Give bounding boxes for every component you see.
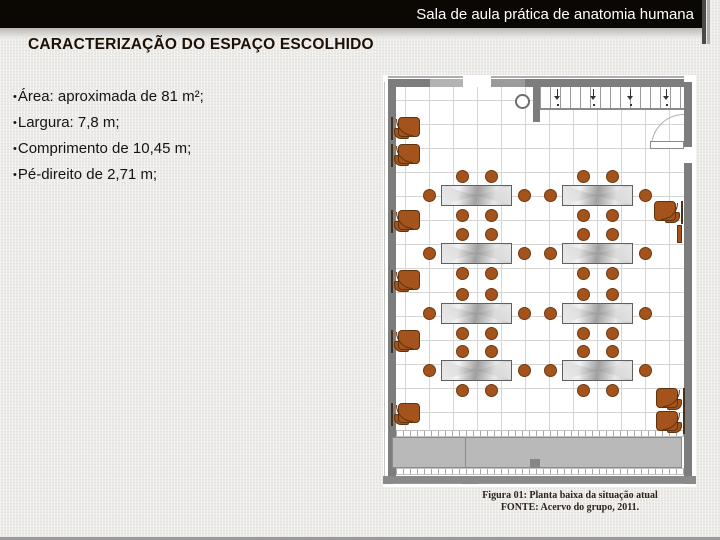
- stool: [423, 364, 436, 377]
- desk-chair: [393, 143, 421, 168]
- stool: [606, 228, 619, 241]
- lab-table: [562, 243, 633, 264]
- stool: [606, 327, 619, 340]
- slide-heading: CARACTERIZAÇÃO DO ESPAÇO ESCOLHIDO: [28, 36, 374, 54]
- stool: [577, 209, 590, 222]
- stool: [639, 189, 652, 202]
- door-leaf: [650, 141, 684, 149]
- figure-caption: Figura 01: Planta baixa da situação atua…: [425, 490, 715, 514]
- stool: [485, 384, 498, 397]
- desk-chair: [393, 116, 421, 141]
- stool: [456, 267, 469, 280]
- stool: [518, 189, 531, 202]
- stool: [577, 288, 590, 301]
- tile-tick-band: [396, 468, 684, 475]
- stool: [423, 247, 436, 260]
- stool: [544, 247, 557, 260]
- stool: [577, 384, 590, 397]
- lab-table: [441, 360, 512, 381]
- desk-chair: [393, 402, 421, 427]
- presentation-slide: Sala de aula prática de anatomia humana …: [0, 0, 720, 540]
- stool: [518, 307, 531, 320]
- stool: [606, 209, 619, 222]
- desk-chair-bracket: [391, 210, 393, 233]
- stool: [485, 345, 498, 358]
- slide-title-text: Sala de aula prática de anatomia humana: [416, 6, 702, 23]
- column-circle: [515, 94, 530, 109]
- stool: [606, 384, 619, 397]
- desk-chair: [393, 209, 421, 234]
- stool: [577, 170, 590, 183]
- bullet-list: •Área: aproximada de 81 m²; •Largura: 7,…: [13, 84, 204, 188]
- plan-outer-edge: [384, 82, 385, 479]
- stool: [544, 307, 557, 320]
- wall-top: [388, 79, 430, 87]
- desk-chair: [393, 329, 421, 354]
- stool: [456, 228, 469, 241]
- lab-table: [441, 303, 512, 324]
- window-arrow-dot: [593, 104, 595, 106]
- window-arrow-dot: [557, 104, 559, 106]
- stool: [518, 247, 531, 260]
- stool: [456, 170, 469, 183]
- stool: [485, 288, 498, 301]
- wall-top-outline: [388, 76, 463, 78]
- counter-divider: [465, 437, 466, 468]
- desk-chair: [393, 269, 421, 294]
- wall-bench-strip: [677, 225, 682, 243]
- window-arrow-icon: [554, 89, 561, 103]
- desk-chair-bracket: [683, 388, 685, 411]
- window-arrow-icon: [590, 89, 597, 103]
- stool: [456, 288, 469, 301]
- stool: [606, 345, 619, 358]
- stool: [485, 209, 498, 222]
- stool: [577, 228, 590, 241]
- stool: [544, 189, 557, 202]
- stool: [485, 267, 498, 280]
- wall-top-window: [491, 79, 525, 87]
- bullet-item-largura: •Largura: 7,8 m;: [13, 110, 204, 136]
- floor-plan: [383, 75, 696, 487]
- lab-table: [562, 360, 633, 381]
- desk-chair-bracket: [681, 201, 683, 224]
- slide-title-bar: Sala de aula prática de anatomia humana: [0, 0, 702, 28]
- accent-stripe-dark: [702, 0, 706, 44]
- stool: [606, 288, 619, 301]
- stool: [606, 170, 619, 183]
- wall-stub: [533, 82, 540, 122]
- stool: [456, 209, 469, 222]
- desk-chair-bracket: [391, 403, 393, 426]
- stool: [639, 307, 652, 320]
- window-arrow-dot: [666, 104, 668, 106]
- dimension-line: [478, 483, 684, 484]
- dimension-line: [393, 483, 462, 484]
- stool: [456, 384, 469, 397]
- desk-chair-bracket: [391, 330, 393, 353]
- window-arrow-dot: [630, 104, 632, 106]
- desk-chair: [655, 387, 683, 412]
- stool: [423, 189, 436, 202]
- wall-right: [684, 82, 692, 147]
- stool: [456, 345, 469, 358]
- window-band: [540, 87, 684, 110]
- stool: [639, 364, 652, 377]
- lab-table: [441, 243, 512, 264]
- accent-stripe-light: [707, 0, 710, 44]
- stool: [423, 307, 436, 320]
- stool: [485, 327, 498, 340]
- lab-table: [562, 185, 633, 206]
- desk-chair-bracket: [391, 144, 393, 167]
- wall-top: [525, 79, 684, 87]
- stool: [456, 327, 469, 340]
- stool: [606, 267, 619, 280]
- stool: [485, 228, 498, 241]
- tile-tick-band: [396, 430, 684, 437]
- stool: [485, 170, 498, 183]
- desk-chair-bracket: [391, 270, 393, 293]
- stool: [577, 267, 590, 280]
- wall-top-outline: [491, 76, 684, 78]
- stool: [577, 327, 590, 340]
- wall-right: [684, 163, 692, 479]
- figure-caption-line1: Figura 01: Planta baixa da situação atua…: [425, 490, 715, 502]
- bullet-item-pe-direito: •Pé-direito de 2,71 m;: [13, 162, 204, 188]
- desk-chair-bracket: [391, 117, 393, 140]
- lab-table: [562, 303, 633, 324]
- desk-chair: [655, 410, 683, 435]
- stool: [577, 345, 590, 358]
- window-arrow-icon: [627, 89, 634, 103]
- bullet-item-area: •Área: aproximada de 81 m²;: [13, 84, 204, 110]
- desk-chair-bracket: [683, 411, 685, 434]
- desk-chair: [653, 200, 681, 225]
- bullet-item-comprimento: •Comprimento de 10,45 m;: [13, 136, 204, 162]
- figure-caption-line2: FONTE: Acervo do grupo, 2011.: [425, 502, 715, 514]
- wall-top-window: [430, 79, 463, 87]
- stool: [518, 364, 531, 377]
- lab-table: [441, 185, 512, 206]
- window-arrow-icon: [663, 89, 670, 103]
- stool: [639, 247, 652, 260]
- stool: [544, 364, 557, 377]
